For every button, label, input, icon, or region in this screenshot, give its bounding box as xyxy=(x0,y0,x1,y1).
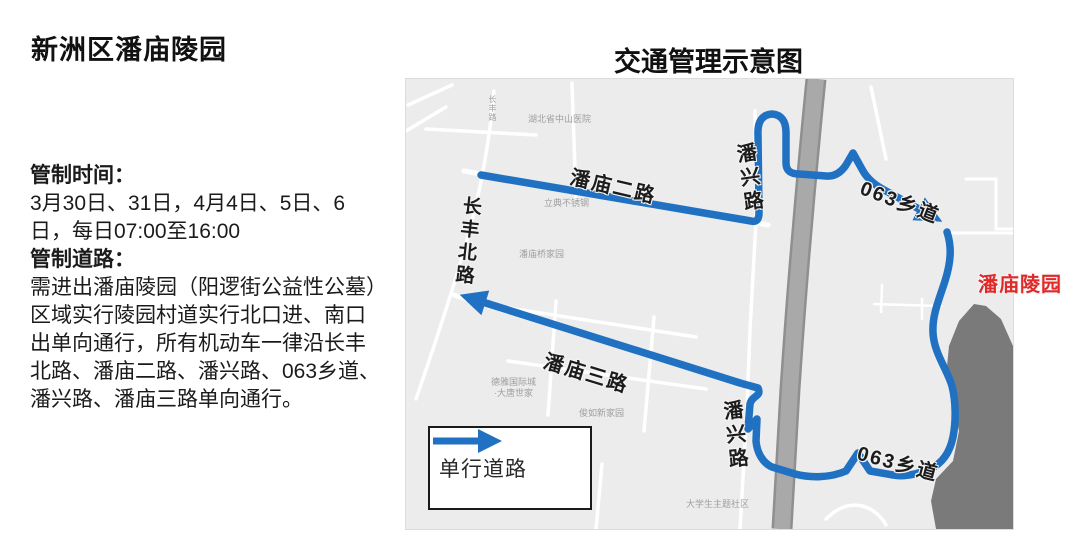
map-title: 交通管理示意图 xyxy=(405,40,1012,79)
page-title: 新洲区潘庙陵园 xyxy=(31,28,227,67)
poi-label-hospital: 湖北省中山医院 xyxy=(528,112,591,125)
poi-label-student-community: 大学生主题社区 xyxy=(686,497,749,510)
control-roads-line: 北路、潘庙二路、潘兴路、063乡道、 xyxy=(30,358,415,386)
poi-label-panmiao-bridge-homes: 潘庙桥家园 xyxy=(519,247,564,260)
poi-label-steel-shop: 立典不锈钢 xyxy=(544,196,589,209)
poi-label-changfeng-road: 长丰路 xyxy=(487,95,498,122)
traffic-notice-text: 管制时间： 3月30日、31日，4月4日、5日、6 日，每日07:00至16:0… xyxy=(30,162,415,414)
control-roads-line: 出单向通行，所有机动车一律沿长丰 xyxy=(30,330,415,358)
lake-area xyxy=(931,304,1013,529)
traffic-map: 长丰北路 潘庙二路 潘兴路 063乡道 潘庙三路 潘兴路 063乡道 潘庙陵园 … xyxy=(405,78,1014,530)
map-legend: 单行道路 xyxy=(428,426,592,510)
control-roads-line: 潘兴路、潘庙三路单向通行。 xyxy=(30,386,415,414)
control-roads-heading: 管制道路： xyxy=(30,246,415,274)
control-roads-line: 区域实行陵园村道实行北口进、南口 xyxy=(30,302,415,330)
control-time-heading: 管制时间： xyxy=(30,162,415,190)
poi-label-datang-shijia: ·大唐世家 xyxy=(491,388,536,399)
poi-label-residential-mid: 俊如新家园 xyxy=(579,406,624,419)
legend-label: 单行道路 xyxy=(439,453,527,483)
destination-label-panmiao-cemetery: 潘庙陵园 xyxy=(978,268,1062,297)
one-way-arrow-icon xyxy=(430,428,504,454)
control-time-line: 3月30日、31日，4月4日、5日、6 xyxy=(30,190,415,218)
control-time-line: 日，每日07:00至16:00 xyxy=(30,218,415,246)
control-roads-line: 需进出潘庙陵园（阳逻街公益性公墓） xyxy=(30,274,415,302)
poi-label-deya-international: 德雅国际城 xyxy=(491,377,536,388)
